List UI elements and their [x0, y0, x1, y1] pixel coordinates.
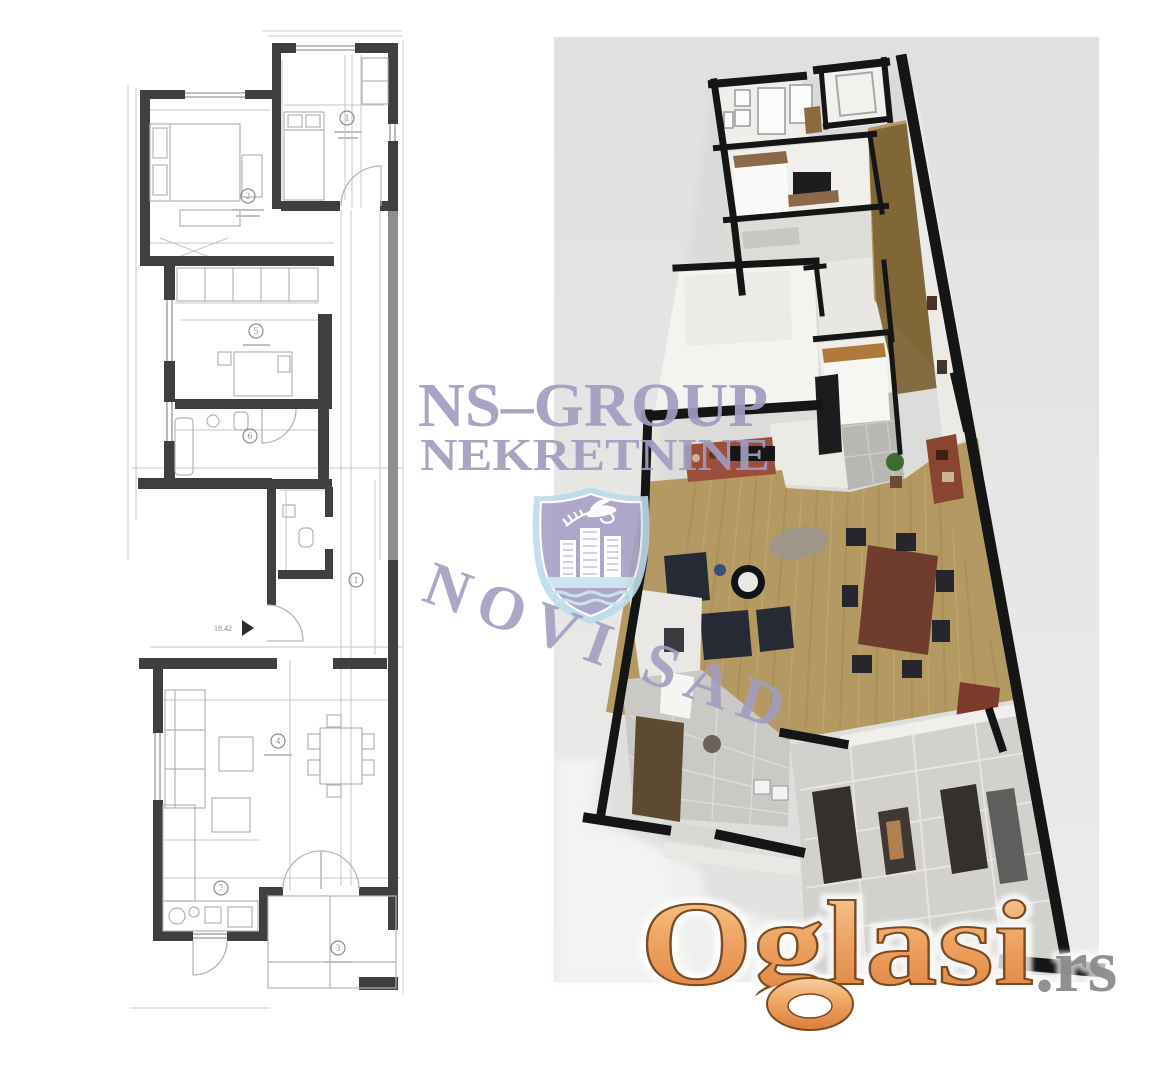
svg-text:2: 2	[246, 191, 251, 201]
svg-text:NEKRETNINE: NEKRETNINE	[420, 429, 770, 480]
svg-text:7: 7	[219, 883, 224, 893]
svg-text:18.42: 18.42	[214, 624, 232, 633]
svg-text:1: 1	[345, 113, 350, 123]
svg-text:6: 6	[248, 431, 253, 441]
svg-text:5: 5	[254, 326, 259, 336]
svg-text:.rs: .rs	[1035, 924, 1117, 1008]
svg-text:3: 3	[336, 943, 341, 953]
svg-text:4: 4	[276, 736, 281, 746]
svg-text:1: 1	[354, 575, 359, 585]
